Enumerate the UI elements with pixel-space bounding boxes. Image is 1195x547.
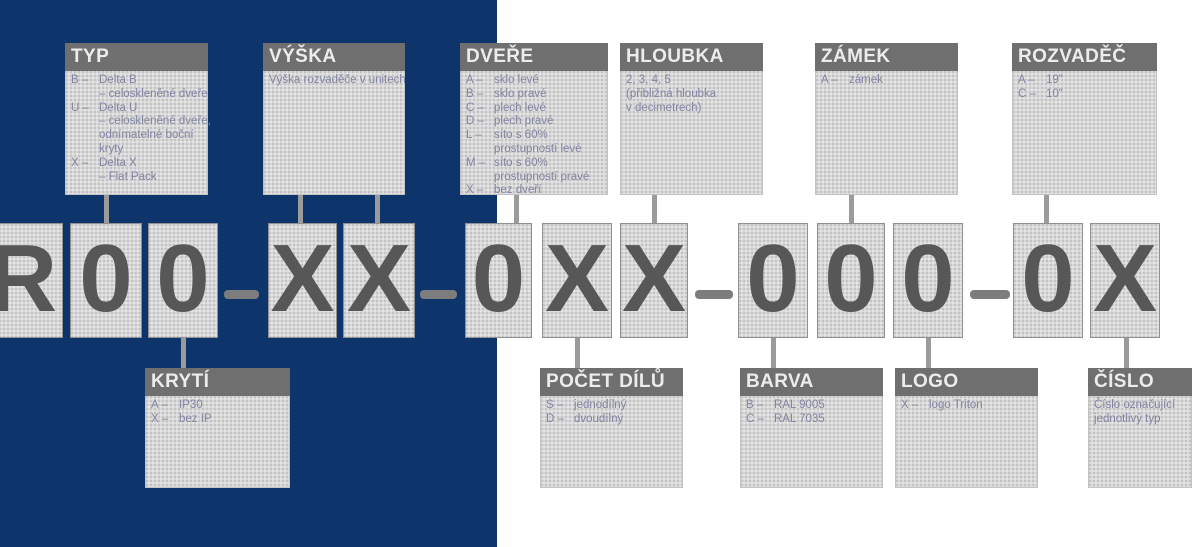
callout-body: A –19"C –10" bbox=[1012, 71, 1157, 195]
callout-body: X –logo Triton bbox=[895, 396, 1038, 488]
code-char-box: R bbox=[0, 223, 63, 338]
code-separator-dash bbox=[970, 290, 1010, 299]
connector-line bbox=[1124, 338, 1129, 369]
callout-title: DVEŘE bbox=[460, 43, 608, 71]
code-char-box: 0 bbox=[465, 223, 532, 338]
callout-title: POČET DÍLŮ bbox=[540, 368, 683, 396]
code-char-box: 0 bbox=[70, 223, 142, 338]
callout-barva: BARVA B –RAL 9005C –RAL 7035 bbox=[740, 368, 883, 488]
code-char-box: X bbox=[620, 223, 688, 338]
code-char-box: 0 bbox=[738, 223, 808, 338]
code-char: R bbox=[0, 231, 57, 327]
code-char-box: 0 bbox=[148, 223, 218, 338]
callout-body: Číslo označujícíjednotlivý typ bbox=[1088, 396, 1192, 488]
callout-zamek: ZÁMEK A –zámek bbox=[815, 43, 958, 195]
callout-body: 2, 3, 4, 5(přibližná hloubkav decimetrec… bbox=[620, 71, 763, 195]
code-char: 0 bbox=[746, 231, 799, 327]
code-char: X bbox=[347, 231, 411, 327]
code-char: X bbox=[1093, 231, 1157, 327]
callout-body: B –Delta B– celoskleněné dveřeU –Delta U… bbox=[65, 71, 208, 195]
connector-line bbox=[514, 195, 519, 224]
code-char-box: X bbox=[268, 223, 337, 338]
code-char-box: 0 bbox=[817, 223, 885, 338]
callout-title: TYP bbox=[65, 43, 208, 71]
callout-pocet-dilu: POČET DÍLŮ S –jednodílnýD –dvoudílný bbox=[540, 368, 683, 488]
connector-line bbox=[1044, 195, 1049, 224]
code-char: 0 bbox=[901, 231, 954, 327]
connector-line bbox=[771, 338, 776, 369]
callout-title: ZÁMEK bbox=[815, 43, 958, 71]
callout-title: KRYTÍ bbox=[145, 368, 290, 396]
connector-line bbox=[652, 195, 657, 224]
callout-body: A –zámek bbox=[815, 71, 958, 195]
code-char: 0 bbox=[472, 231, 525, 327]
code-char: X bbox=[622, 231, 686, 327]
connector-line bbox=[575, 338, 580, 369]
callout-body: S –jednodílnýD –dvoudílný bbox=[540, 396, 683, 488]
callout-title: BARVA bbox=[740, 368, 883, 396]
code-char: X bbox=[545, 231, 609, 327]
code-char-box: 0 bbox=[1013, 223, 1083, 338]
connector-line bbox=[375, 195, 380, 224]
code-separator-dash bbox=[224, 290, 259, 299]
callout-title: HLOUBKA bbox=[620, 43, 763, 71]
connector-line bbox=[849, 195, 854, 224]
callout-title: LOGO bbox=[895, 368, 1038, 396]
callout-body: A –IP30X –bez IP bbox=[145, 396, 290, 488]
product-code-diagram: TYP B –Delta B– celoskleněné dveřeU –Del… bbox=[0, 0, 1195, 547]
callout-rozvadec: ROZVADĚČ A –19"C –10" bbox=[1012, 43, 1157, 195]
connector-line bbox=[926, 338, 931, 369]
connector-line bbox=[298, 195, 303, 224]
code-char: X bbox=[270, 231, 334, 327]
code-char: 0 bbox=[1021, 231, 1074, 327]
code-char: 0 bbox=[156, 231, 209, 327]
callout-title: ČÍSLO bbox=[1088, 368, 1192, 396]
code-separator-dash bbox=[420, 290, 457, 299]
callout-logo: LOGO X –logo Triton bbox=[895, 368, 1038, 488]
callout-title: VÝŠKA bbox=[263, 43, 405, 71]
callout-vyska: VÝŠKA Výška rozvaděče v unitech bbox=[263, 43, 405, 195]
code-char-box: X bbox=[542, 223, 612, 338]
code-char-box: X bbox=[1090, 223, 1160, 338]
callout-cislo: ČÍSLO Číslo označujícíjednotlivý typ bbox=[1088, 368, 1192, 488]
code-char: 0 bbox=[79, 231, 132, 327]
callout-body: B –RAL 9005C –RAL 7035 bbox=[740, 396, 883, 488]
callout-kryti: KRYTÍ A –IP30X –bez IP bbox=[145, 368, 290, 488]
code-char: 0 bbox=[824, 231, 877, 327]
callout-hloubka: HLOUBKA 2, 3, 4, 5(přibližná hloubkav de… bbox=[620, 43, 763, 195]
connector-line bbox=[181, 338, 186, 369]
callout-body: A –sklo levéB –sklo pravéC –plech levéD … bbox=[460, 71, 608, 195]
callout-body: Výška rozvaděče v unitech bbox=[263, 71, 405, 195]
code-char-box: X bbox=[343, 223, 415, 338]
code-char-box: 0 bbox=[893, 223, 963, 338]
connector-line bbox=[104, 195, 109, 224]
code-separator-dash bbox=[695, 290, 733, 299]
callout-dvere: DVEŘE A –sklo levéB –sklo pravéC –plech … bbox=[460, 43, 608, 195]
callout-title: ROZVADĚČ bbox=[1012, 43, 1157, 71]
callout-typ: TYP B –Delta B– celoskleněné dveřeU –Del… bbox=[65, 43, 208, 195]
